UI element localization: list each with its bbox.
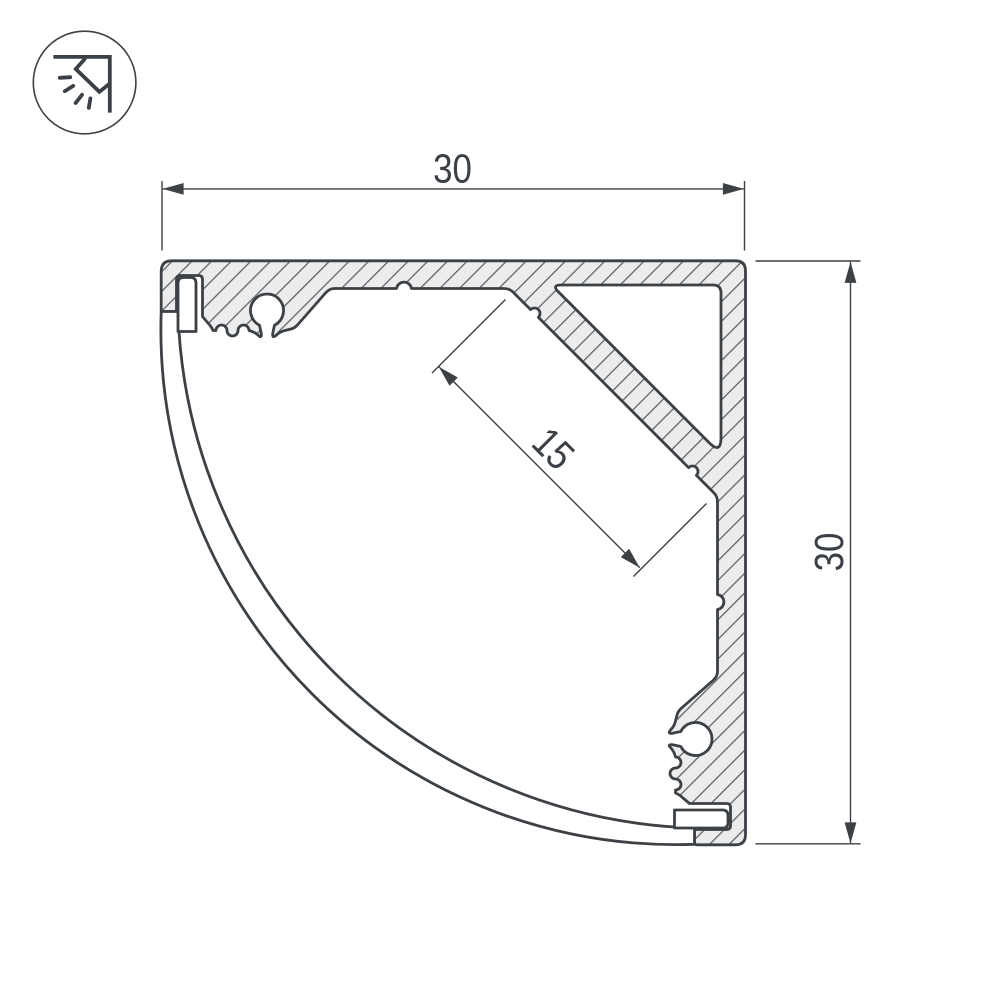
svg-text:30: 30 [433,147,472,192]
svg-text:30: 30 [807,533,852,572]
